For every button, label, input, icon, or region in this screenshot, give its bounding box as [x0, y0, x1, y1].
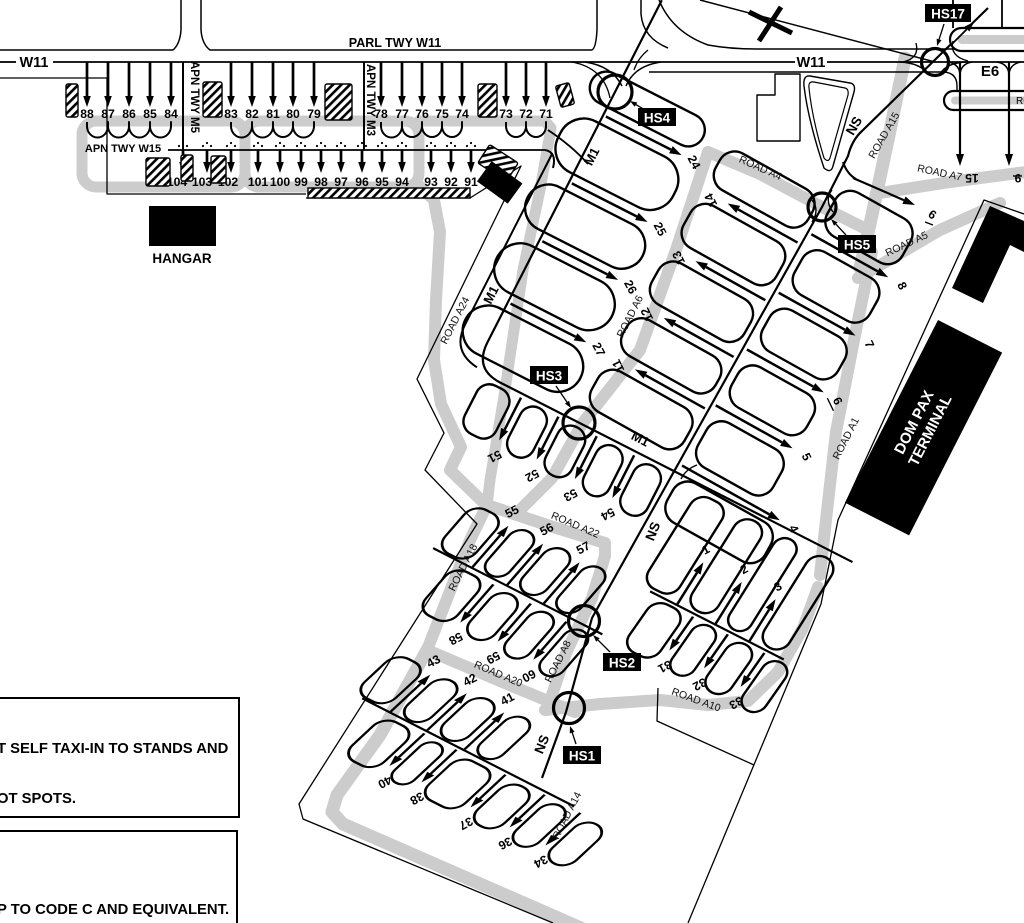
svg-text:97: 97: [334, 175, 348, 189]
svg-text:15: 15: [965, 171, 979, 185]
svg-text:P TO CODE C AND EQUIVALENT.: P TO CODE C AND EQUIVALENT.: [0, 902, 229, 918]
svg-text:94: 94: [395, 175, 409, 189]
svg-text:81: 81: [266, 107, 280, 121]
svg-text:T SELF TAXI-IN TO STANDS AND: T SELF TAXI-IN TO STANDS AND: [0, 741, 229, 757]
svg-text:9: 9: [1014, 171, 1021, 185]
svg-text:75: 75: [435, 107, 449, 121]
svg-text:93: 93: [424, 175, 438, 189]
svg-text:77: 77: [395, 107, 409, 121]
svg-text:98: 98: [314, 175, 328, 189]
svg-text:88: 88: [80, 107, 94, 121]
svg-text:71: 71: [539, 107, 553, 121]
svg-text:84: 84: [164, 107, 178, 121]
svg-text:APN TWY M5: APN TWY M5: [188, 61, 200, 134]
svg-text:73: 73: [499, 107, 513, 121]
svg-text:80: 80: [286, 107, 300, 121]
svg-text:HANGAR: HANGAR: [152, 251, 211, 266]
svg-text:HS5: HS5: [844, 238, 871, 253]
svg-text:85: 85: [143, 107, 157, 121]
svg-text:87: 87: [101, 107, 115, 121]
svg-text:82: 82: [245, 107, 259, 121]
svg-text:HS1: HS1: [569, 749, 596, 764]
svg-text:100: 100: [270, 175, 291, 189]
svg-text:76: 76: [415, 107, 429, 121]
svg-text:OT SPOTS.: OT SPOTS.: [0, 791, 76, 807]
svg-text:W11: W11: [796, 55, 825, 71]
svg-text:APN TWY W15: APN TWY W15: [85, 143, 161, 155]
svg-text:101: 101: [248, 175, 269, 189]
svg-text:83: 83: [224, 107, 238, 121]
svg-text:86: 86: [122, 107, 136, 121]
svg-text:72: 72: [519, 107, 533, 121]
svg-text:HS17: HS17: [931, 7, 965, 22]
svg-text:HS3: HS3: [536, 369, 563, 384]
svg-text:W11: W11: [19, 55, 48, 71]
svg-text:PARL TWY W11: PARL TWY W11: [349, 36, 441, 50]
svg-text:91: 91: [464, 175, 478, 189]
svg-text:HS2: HS2: [609, 656, 635, 671]
svg-text:79: 79: [307, 107, 321, 121]
svg-text:E6: E6: [981, 63, 999, 80]
svg-text:APN TWY M3: APN TWY M3: [364, 64, 376, 136]
svg-text:RO: RO: [1016, 96, 1024, 107]
svg-text:74: 74: [455, 107, 469, 121]
svg-text:92: 92: [444, 175, 458, 189]
svg-text:HS4: HS4: [644, 111, 671, 126]
svg-text:103: 103: [192, 175, 213, 189]
svg-text:99: 99: [294, 175, 308, 189]
svg-text:95: 95: [375, 175, 389, 189]
svg-text:96: 96: [355, 175, 369, 189]
